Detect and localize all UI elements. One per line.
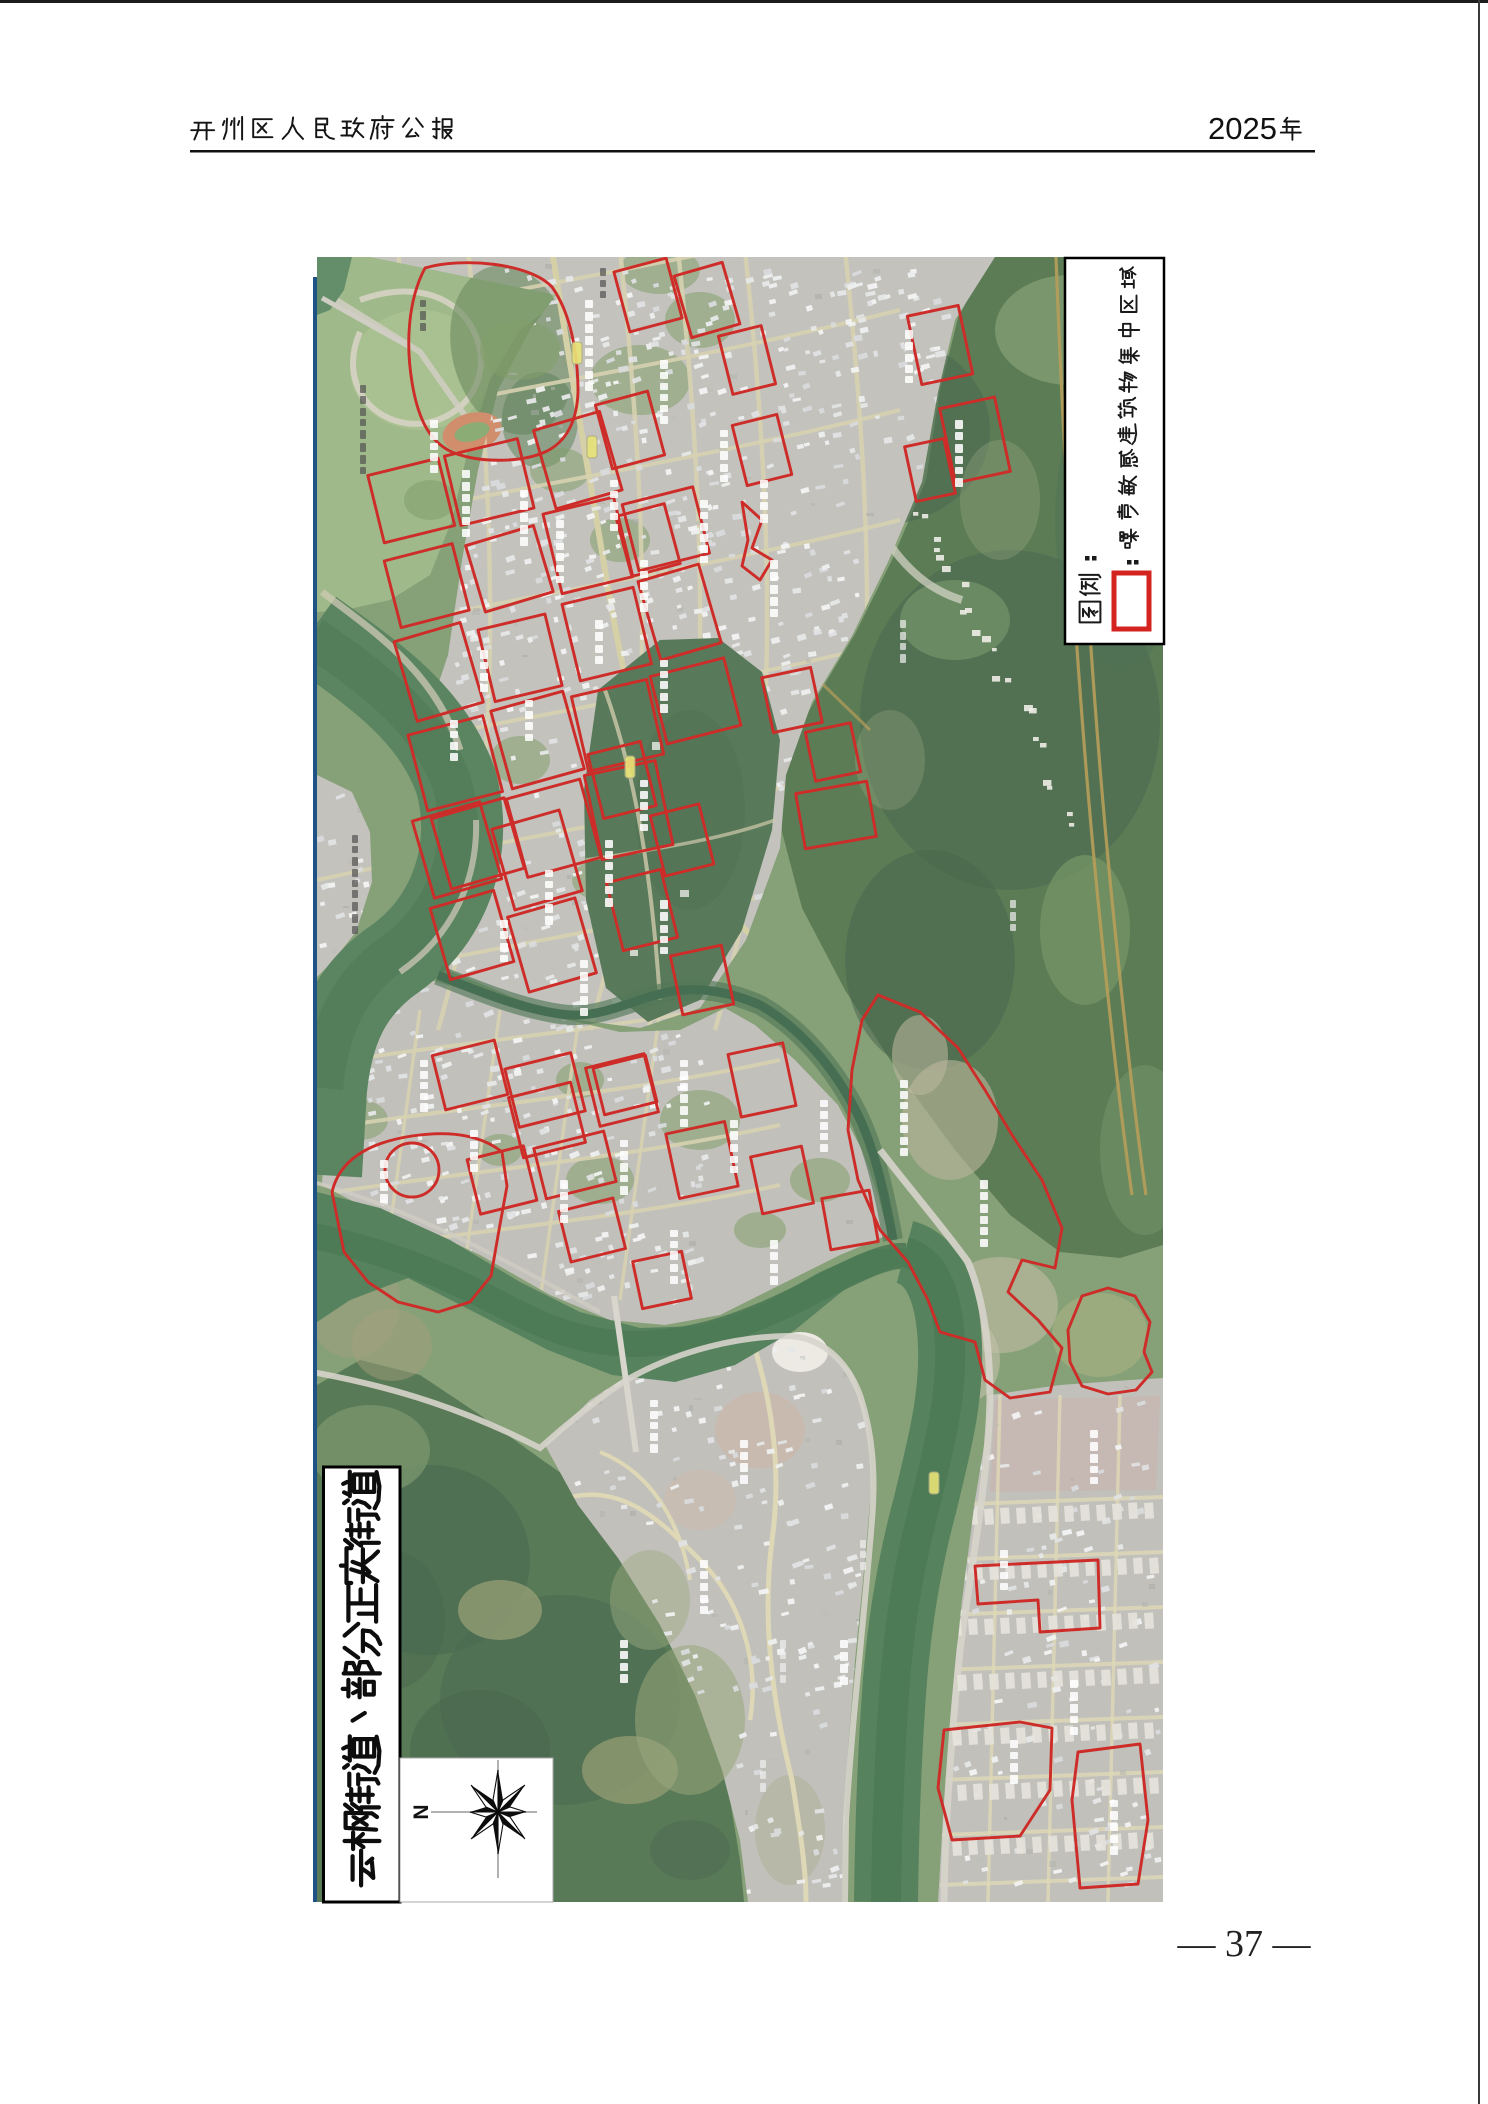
svg-text:— 37 —: — 37 — xyxy=(1177,1923,1312,1965)
svg-text:2025: 2025 xyxy=(1208,111,1277,146)
svg-text:N: N xyxy=(410,1804,433,1819)
